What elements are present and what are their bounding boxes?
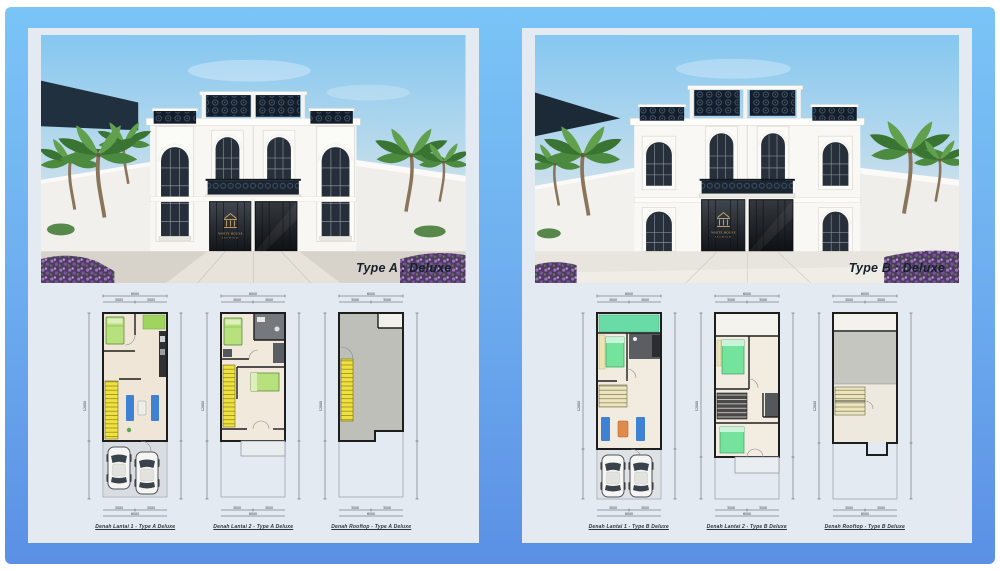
svg-text:12000: 12000	[201, 401, 205, 411]
svg-text:6000: 6000	[131, 512, 139, 516]
bathroom	[765, 393, 778, 417]
center-pillar	[251, 199, 255, 252]
upper-outer-window-right	[818, 136, 852, 190]
garage-door-right	[749, 200, 793, 252]
balcony-railing	[699, 179, 794, 198]
svg-text:6000: 6000	[861, 512, 869, 516]
svg-text:3000: 3000	[759, 506, 767, 510]
staircase	[717, 393, 747, 419]
bathroom-2	[273, 343, 284, 363]
svg-text:3000: 3000	[609, 506, 617, 510]
svg-text:3000: 3000	[877, 298, 885, 302]
void	[834, 314, 896, 331]
tall-arched-window-left	[156, 126, 194, 241]
floor-plan-a-ground-svg: 6000 3000 3000 3000 3000 6000 12000	[79, 289, 191, 525]
plan-caption: Denah Rooftop - Type B Deluxe	[825, 524, 905, 530]
floor-plan-a-ground: 6000 3000 3000 3000 3000 6000 12000	[79, 289, 191, 535]
svg-text:3000: 3000	[115, 298, 123, 302]
svg-text:3000: 3000	[147, 298, 155, 302]
svg-text:3000: 3000	[845, 298, 853, 302]
upper-arched-window-left	[212, 130, 244, 184]
roof-room	[378, 313, 403, 328]
panel-type-b: WHITE HOUSE PREMIUM	[522, 28, 973, 543]
plans-row-b: 6000 3000 3000 3000 3000 6000 12000	[535, 284, 960, 535]
bedroom-2	[720, 427, 744, 453]
floor-plan-b-rooftop: 6000 3000 3000 3000 3000 6000 12000	[809, 289, 921, 535]
render-scene-b: WHITE HOUSE PREMIUM	[535, 34, 960, 284]
svg-text:6000: 6000	[861, 292, 869, 296]
upper-outer-window-left	[642, 136, 676, 190]
svg-text:6000: 6000	[367, 512, 375, 516]
type-label-b: Type B : Deluxe	[849, 261, 945, 275]
floor-plan-b-ground: 6000 3000 3000 3000 3000 6000 12000	[573, 289, 685, 535]
svg-text:6000: 6000	[131, 292, 139, 296]
blue-board: WHITE HOUSE PREMIUM	[5, 7, 995, 564]
floor-plan-a-rooftop: 6000 3000 3000 3000 3000 6000 12000	[315, 289, 427, 535]
upper-center-window-left	[705, 126, 737, 184]
svg-text:3000: 3000	[383, 506, 391, 510]
render-scene-a: WHITE HOUSE PREMIUM	[41, 34, 466, 284]
svg-text:12000: 12000	[83, 401, 87, 411]
svg-text:3000: 3000	[351, 298, 359, 302]
bedroom-2	[251, 373, 279, 391]
balcony	[241, 441, 285, 456]
facade: WHITE HOUSE PREMIUM	[630, 86, 864, 254]
plan-caption: Denah Lantai 2 - Type A Deluxe	[213, 524, 293, 530]
svg-text:12000: 12000	[319, 401, 323, 411]
lower-outer-window-left	[642, 208, 676, 252]
brand-tagline: PREMIUM	[222, 237, 239, 239]
floor-plan-a-rooftop-svg: 6000 3000 3000 3000 3000 6000 12000	[315, 289, 427, 525]
svg-text:3000: 3000	[845, 506, 853, 510]
bathroom	[254, 314, 284, 340]
svg-text:3000: 3000	[383, 298, 391, 302]
staircase	[599, 385, 627, 407]
svg-text:12000: 12000	[813, 401, 817, 411]
svg-text:6000: 6000	[743, 512, 751, 516]
plans-row-a: 6000 3000 3000 3000 3000 6000 12000	[41, 284, 466, 535]
plan-caption: Denah Lantai 2 - Type B Deluxe	[707, 524, 787, 530]
render-type-b: WHITE HOUSE PREMIUM	[535, 34, 960, 284]
render-type-a: WHITE HOUSE PREMIUM	[41, 34, 466, 284]
type-label-a: Type A : Deluxe	[356, 261, 451, 275]
plan-caption: Denah Lantai 1 - Type A Deluxe	[95, 524, 175, 530]
svg-text:3000: 3000	[115, 506, 123, 510]
staircase	[105, 381, 118, 439]
svg-text:3000: 3000	[233, 506, 241, 510]
svg-text:6000: 6000	[625, 292, 633, 296]
plan-caption: Denah Rooftop - Type A Deluxe	[331, 524, 411, 530]
svg-text:3000: 3000	[727, 298, 735, 302]
floor-plan-a-second: 6000 3000 3000 3000 3000 6000 12000	[197, 289, 309, 535]
staircase	[341, 359, 353, 421]
bedroom	[599, 335, 624, 369]
svg-text:3000: 3000	[609, 298, 617, 302]
upper-center-window-right	[757, 126, 789, 184]
floor-plan-b-second-svg: 6000 3000 3000 3000 3000 6000 12000	[691, 289, 803, 525]
void	[716, 314, 778, 336]
floor-plan-b-second: 6000 3000 3000 3000 3000 6000 12000	[691, 289, 803, 535]
svg-text:3000: 3000	[641, 506, 649, 510]
kitchen	[159, 331, 166, 377]
kitchen	[629, 333, 660, 359]
bedroom	[106, 317, 124, 344]
brand-name: WHITE HOUSE	[218, 231, 243, 235]
svg-text:12000: 12000	[577, 401, 581, 411]
svg-text:3000: 3000	[147, 506, 155, 510]
balcony-railing	[206, 179, 301, 199]
svg-text:3000: 3000	[877, 506, 885, 510]
poster: WHITE HOUSE PREMIUM	[0, 0, 1000, 571]
garden-patch	[143, 315, 165, 329]
plan-caption: Denah Lantai 1 - Type B Deluxe	[589, 524, 669, 530]
garden	[599, 315, 659, 332]
svg-text:12000: 12000	[695, 401, 699, 411]
panel-type-a: WHITE HOUSE PREMIUM	[28, 28, 479, 543]
tall-arched-window-right	[317, 126, 355, 241]
floor-plan-b-ground-svg: 6000 3000 3000 3000 3000 6000 12000	[573, 289, 685, 525]
brand-name: WHITE HOUSE	[711, 230, 736, 234]
staircase	[223, 365, 235, 427]
svg-text:6000: 6000	[367, 292, 375, 296]
svg-text:6000: 6000	[249, 512, 257, 516]
roof-deck	[834, 332, 896, 384]
svg-text:3000: 3000	[265, 298, 273, 302]
flower-hedge-left	[535, 262, 577, 283]
svg-text:3000: 3000	[265, 506, 273, 510]
svg-text:3000: 3000	[351, 506, 359, 510]
svg-text:3000: 3000	[759, 298, 767, 302]
svg-text:3000: 3000	[641, 298, 649, 302]
upper-arched-window-right	[263, 130, 295, 184]
floor-plan-b-rooftop-svg: 6000 3000 3000 3000 3000 6000 12000	[809, 289, 921, 525]
svg-text:3000: 3000	[727, 506, 735, 510]
brand-tagline: PREMIUM	[714, 236, 731, 238]
svg-text:6000: 6000	[625, 512, 633, 516]
balcony	[735, 457, 779, 473]
shrub	[536, 228, 560, 238]
svg-text:6000: 6000	[743, 292, 751, 296]
center-pillar	[745, 198, 749, 252]
shrub	[414, 225, 446, 237]
svg-text:6000: 6000	[249, 292, 257, 296]
lower-outer-window-right	[818, 208, 852, 252]
floor-plan-a-second-svg: 6000 3000 3000 3000 3000 6000 12000	[197, 289, 309, 525]
shrub	[47, 223, 75, 235]
garage-door-right	[255, 202, 297, 252]
svg-text:3000: 3000	[233, 298, 241, 302]
facade: WHITE HOUSE PREMIUM	[146, 92, 360, 252]
